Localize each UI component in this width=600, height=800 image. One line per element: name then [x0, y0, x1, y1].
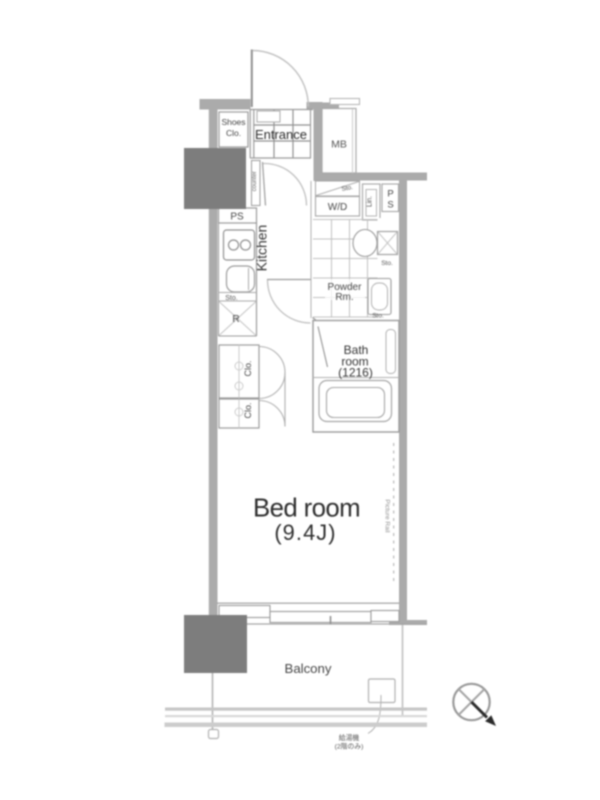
- svg-text:Bed room: Bed room: [253, 495, 360, 523]
- svg-text:(9.4J): (9.4J): [274, 520, 336, 545]
- svg-text:PS: PS: [230, 212, 244, 223]
- svg-text:Kitchen: Kitchen: [254, 225, 270, 272]
- svg-text:Rm.: Rm.: [335, 292, 353, 303]
- svg-text:(1216): (1216): [338, 366, 373, 380]
- svg-text:(2階のみ): (2階のみ): [335, 742, 364, 751]
- svg-text:R: R: [232, 314, 239, 325]
- svg-text:Lin.: Lin.: [366, 196, 373, 207]
- svg-text:P: P: [387, 189, 393, 200]
- svg-text:Entrance: Entrance: [255, 127, 307, 142]
- svg-text:S: S: [387, 200, 393, 211]
- svg-text:MB: MB: [331, 139, 347, 151]
- svg-text:Sto.: Sto.: [372, 313, 384, 320]
- svg-text:counter: counter: [252, 171, 258, 191]
- svg-text:Shoes: Shoes: [221, 117, 245, 127]
- svg-text:Sto.: Sto.: [381, 260, 393, 267]
- svg-text:W/D: W/D: [328, 202, 347, 213]
- svg-text:Clo.: Clo.: [243, 402, 253, 418]
- svg-text:Sto.: Sto.: [225, 295, 238, 302]
- svg-text:Clo.: Clo.: [243, 360, 253, 376]
- svg-text:給湯機: 給湯機: [339, 733, 360, 742]
- svg-text:Clo.: Clo.: [226, 128, 241, 138]
- svg-text:Balcony: Balcony: [285, 661, 332, 676]
- svg-text:Picture Rail: Picture Rail: [384, 499, 391, 533]
